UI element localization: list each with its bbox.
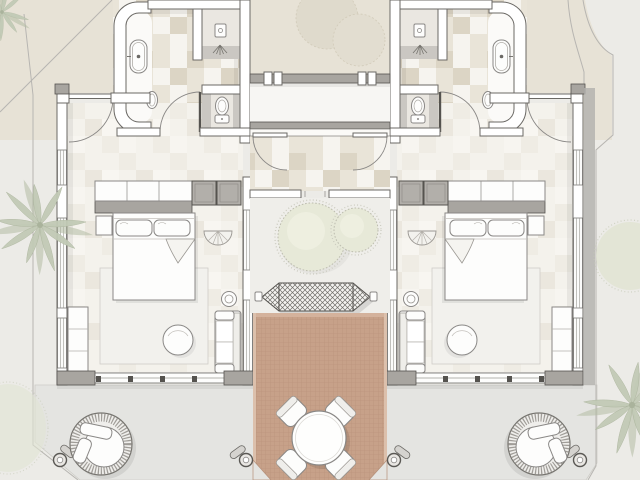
floor-plan-canvas bbox=[0, 0, 640, 480]
dining-table bbox=[292, 411, 346, 465]
building-shadow-east bbox=[584, 88, 595, 385]
vestibule-south-wall bbox=[250, 190, 301, 198]
vestibule bbox=[250, 129, 390, 198]
breezeway-floor bbox=[250, 83, 390, 122]
vestibule-floor bbox=[250, 129, 390, 191]
vestibule-south-wall bbox=[329, 190, 390, 198]
hammock-post bbox=[255, 292, 262, 301]
breezeway bbox=[250, 72, 390, 129]
hammock-post bbox=[370, 292, 377, 301]
breezeway-south-wall bbox=[250, 122, 390, 129]
floor-plan-drawing bbox=[0, 0, 640, 480]
